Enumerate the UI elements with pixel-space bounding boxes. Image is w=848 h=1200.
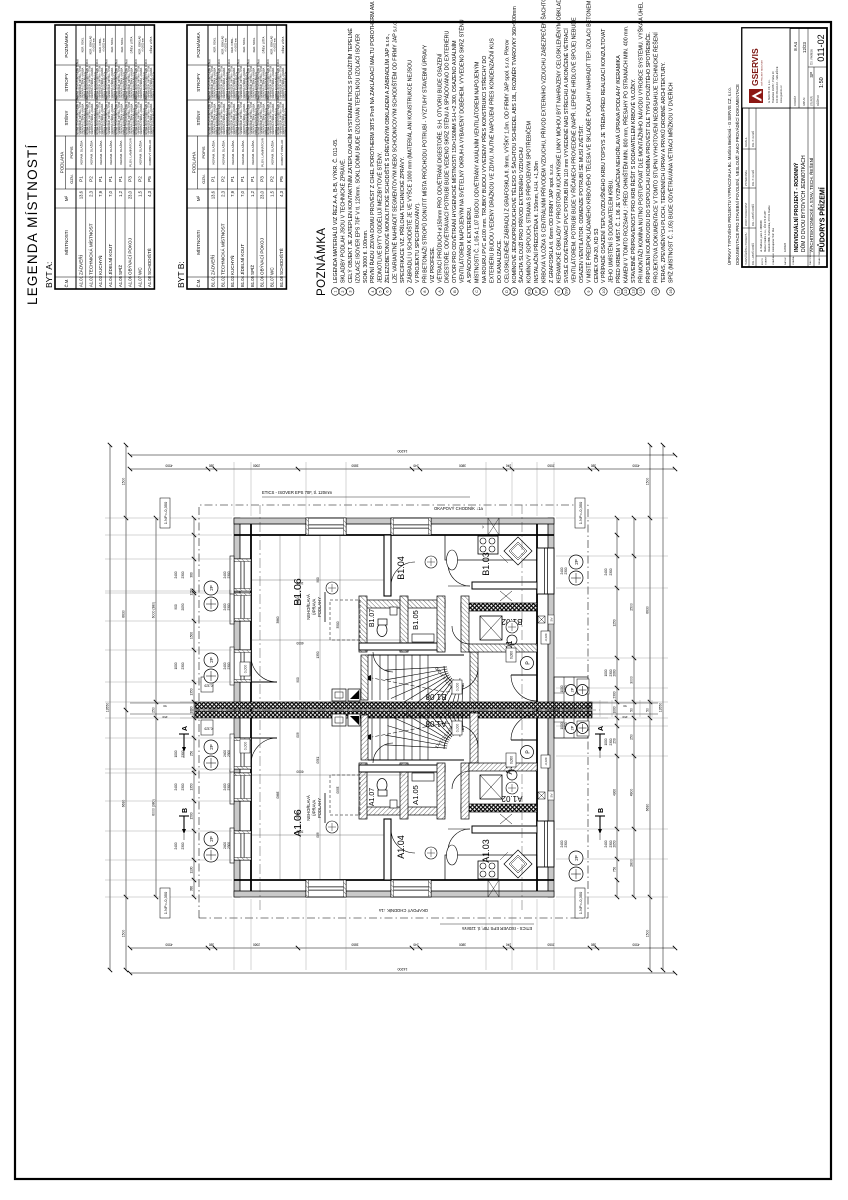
svg-text:SPÍŽ (MÍSTNOST Č. 1.05) BUDE O: SPÍŽ (MÍSTNOST Č. 1.05) BUDE ODVĚTRÁVÁNA…: [666, 82, 674, 283]
svg-text:P2: P2: [137, 176, 142, 182]
svg-text:NEHOŘLAVÁ: NEHOŘLAVÁ: [306, 594, 311, 620]
svg-text:2300: 2300: [227, 603, 231, 610]
svg-text:1350: 1350: [190, 783, 194, 790]
svg-text:KERAM. DLAŽBA: KERAM. DLAŽBA: [137, 140, 142, 164]
svg-text:2060: 2060: [547, 464, 554, 468]
svg-text:ÚPRAVA: ÚPRAVA: [312, 799, 317, 816]
svg-text:2P: 2P: [574, 559, 579, 565]
svg-text:zastoupena: Tom Rus: zastoupena: Tom Rus: [772, 227, 775, 252]
svg-text:A1.05: A1.05: [118, 275, 123, 287]
svg-text:1,2: 1,2: [118, 190, 123, 196]
svg-text:1,5: 1,5: [269, 190, 274, 196]
svg-text:1500: 1500: [646, 930, 650, 938]
svg-text:PLOV. LAMINÁTOVÁ: PLOV. LAMINÁTOVÁ: [261, 138, 265, 167]
svg-text:3860: 3860: [351, 943, 358, 947]
svg-text:2060: 2060: [253, 464, 260, 468]
svg-text:50: 50: [163, 704, 167, 708]
svg-text:380: 380: [190, 572, 194, 578]
svg-text:ZÁBRADLÍ U SCHODIŠTĚ JE VE VÝŠ: ZÁBRADLÍ U SCHODIŠTĚ JE VE VÝŠCE 1000 mm…: [406, 60, 414, 283]
svg-text:VÁPENOCEM. OMÍTKA + ŠTUK: VÁPENOCEM. OMÍTKA + ŠTUK: [108, 65, 111, 98]
svg-text:SÁDROVÁ STĚRKA + MALBA: SÁDROVÁ STĚRKA + MALBA: [282, 67, 285, 98]
svg-text:PODLAHY: PODLAHY: [317, 597, 322, 617]
svg-text:P2: P2: [220, 176, 225, 182]
svg-text:Dneboh 868b, Bučkovinka, 272 0: Dneboh 868b, Bučkovinka, 272 01 Kladno: [768, 205, 771, 252]
svg-text:-0,329: -0,329: [204, 684, 213, 688]
svg-text:MÍSTNOSTI Č. 1.05 A 1.07 BUDOU: MÍSTNOSTI Č. 1.05 A 1.07 BUDOU ODVĚTRÁNY…: [473, 62, 481, 283]
svg-text:JÍDELNÍ KOUT: JÍDELNÍ KOUT: [239, 244, 245, 275]
svg-text:PODLAHA: PODLAHA: [60, 152, 65, 174]
svg-text:STĚNY: STĚNY: [62, 110, 69, 125]
svg-text:2300: 2300: [181, 662, 185, 669]
svg-text:HLAVNÍ ŘEŠITEL PROJEKTU: HLAVNÍ ŘEŠITEL PROJEKTU: [745, 232, 748, 265]
svg-text:P1: P1: [118, 176, 123, 182]
svg-text:2300: 2300: [564, 840, 568, 847]
svg-text:6630: 6630: [122, 800, 126, 808]
svg-text:2060: 2060: [547, 943, 554, 947]
svg-text:STUPEŇ: STUPEŇ: [811, 96, 814, 106]
svg-text:6630: 6630: [646, 606, 650, 614]
svg-text:50: 50: [623, 704, 627, 708]
svg-text:A1.02: A1.02: [501, 794, 522, 803]
svg-text:TERAS, ZPEVNĚNÝCH PLOCH, TERÉN: TERAS, ZPEVNĚNÝCH PLOCH, TERÉNNÍCH ÚPRAV…: [659, 62, 667, 283]
svg-text:380: 380: [209, 464, 215, 468]
svg-text:2300: 2300: [181, 783, 185, 790]
svg-text:C: C: [475, 290, 479, 293]
svg-text:380: 380: [209, 943, 215, 947]
svg-text:P1: P1: [108, 176, 113, 182]
svg-text:www.gservis.cz: www.gservis.cz: [779, 85, 783, 103]
svg-text:DIGESTOŘE. ODVĚTRÁVACÍ POTRUBÍ: DIGESTOŘE. ODVĚTRÁVACÍ POTRUBÍ BUDE VEDE…: [443, 30, 451, 283]
svg-text:SÁDROVÁ STĚRKA + MALBA: SÁDROVÁ STĚRKA + MALBA: [223, 67, 226, 98]
svg-text:P1: P1: [230, 176, 235, 182]
svg-text:PODLAHY: PODLAHY: [317, 798, 322, 818]
svg-text:NOSNÉ ZDIVO POROTHERM 30 Profi: NOSNÉ ZDIVO POROTHERM 30 Profi: [218, 59, 221, 99]
svg-text:KERAMICKÉ OBKLADY V PROSTORU K: KERAMICKÉ OBKLADY V PROSTORU KUCHYŇSKÉ L…: [555, 0, 563, 283]
svg-text:VÁŠ PROJEKT NA DOSAH: VÁŠ PROJEKT NA DOSAH: [761, 60, 764, 86]
svg-text:240: 240: [413, 464, 419, 468]
svg-text:NOSNÉ ZDIVO POROTHERM 30 Profi: NOSNÉ ZDIVO POROTHERM 30 Profi: [145, 59, 148, 99]
svg-text:G SERVIS CZ, s.r.o.: G SERVIS CZ, s.r.o.: [767, 79, 771, 103]
svg-text:2300: 2300: [613, 691, 617, 698]
svg-text:1:50: 1:50: [819, 77, 825, 88]
svg-text:VĚTRACÍ PRŮDUCH ø150mm PRO ODV: VĚTRACÍ PRŮDUCH ø150mm PRO ODVĚTRÁNÍ DIG…: [435, 53, 443, 283]
svg-text:GSERVIS: GSERVIS: [750, 48, 760, 86]
svg-text:1,5: 1,5: [137, 190, 142, 196]
svg-text:+0+2000 mm: +0+2000 mm: [94, 38, 96, 52]
svg-text:KERAM. DLAŽBA: KERAM. DLAŽBA: [98, 140, 103, 164]
svg-text:0,000: 0,000: [510, 756, 514, 764]
svg-text:DŮM O DVOU BYTOVÝCH JEDNOTKÁCH: DŮM O DVOU BYTOVÝCH JEDNOTKÁCH: [800, 155, 807, 252]
svg-text:2300: 2300: [227, 662, 231, 669]
svg-text:P3: P3: [260, 176, 265, 182]
svg-text:ZÁDVEŘÍ: ZÁDVEŘÍ: [209, 254, 216, 275]
svg-text:1.NP=-0,350: 1.NP=-0,350: [163, 501, 168, 524]
svg-text:KER. OBKLAD: KER. OBKLAD: [88, 36, 92, 55]
svg-text:V PŘÍPADĚ OSAZENÍ TEPLOVZDUŠNÉ: V PŘÍPADĚ OSAZENÍ TEPLOVZDUŠNÉHO KRBU TO…: [599, 28, 607, 283]
svg-text:POPIS: POPIS: [69, 146, 74, 159]
svg-text:KER. OBKLAD: KER. OBKLAD: [137, 36, 141, 55]
svg-text:1130: 1130: [190, 866, 194, 873]
svg-text:SÁDROVÁ STĚRKA + MALBA: SÁDROVÁ STĚRKA + MALBA: [150, 103, 153, 134]
svg-text:SV: SV: [565, 289, 569, 295]
svg-text:380: 380: [591, 943, 597, 947]
svg-text:B1.08: B1.08: [279, 275, 284, 287]
svg-text:INSTALAČNÍ PŘEDSTĚNA tl. 150mm: INSTALAČNÍ PŘEDSTĚNA tl. 150mm, H.H. +1,…: [532, 161, 540, 283]
svg-text:10: 10: [602, 289, 606, 293]
svg-text:+0+2000 mm: +0+2000 mm: [275, 38, 277, 52]
svg-text:KER. OBKLAD: KER. OBKLAD: [269, 36, 273, 55]
svg-text:B: B: [453, 290, 457, 293]
svg-text:KRBOVÁ VLOŽKA S CENTRÁLNÍM PŘÍ: KRBOVÁ VLOŽKA S CENTRÁLNÍM PŘÍVODEM VZDU…: [540, 0, 548, 283]
svg-text:13550: 13550: [659, 703, 663, 713]
svg-text:KER. SOKL: KER. SOKL: [252, 37, 256, 52]
svg-text:2300: 2300: [564, 567, 568, 574]
svg-text:4900: 4900: [630, 789, 634, 797]
svg-text:2300: 2300: [227, 842, 231, 849]
svg-text:ING. LUBOŠ KONÍŘ: ING. LUBOŠ KONÍŘ: [752, 243, 755, 265]
svg-text:SÁDROVÁ STĚRKA + MALBA: SÁDROVÁ STĚRKA + MALBA: [272, 67, 275, 98]
svg-text:2500: 2500: [630, 603, 634, 611]
svg-text:1000: 1000: [604, 669, 608, 676]
svg-text:PŘI MONTÁŽI KOMÍNA NUTNO POSTU: PŘI MONTÁŽI KOMÍNA NUTNO POSTUPOVAT DLE …: [637, 2, 645, 283]
svg-text:P: P: [535, 290, 539, 293]
svg-text:SCHODIŠTĚ: SCHODIŠTĚ: [277, 248, 284, 275]
svg-text:240: 240: [506, 464, 512, 468]
svg-text:OKAPOVÝ CHODNÍK ↓1a: OKAPOVÝ CHODNÍK ↓1a: [378, 908, 428, 913]
svg-text:PRVNÍ ŘADU ZDIVA DOMU PROVÉST: PRVNÍ ŘADU ZDIVA DOMU PROVÉST Z CIHEL PO…: [368, 1, 376, 283]
svg-text:DATUM: DATUM: [784, 257, 787, 265]
svg-text:OKAPOVÝ CHODNÍK ↓1a: OKAPOVÝ CHODNÍK ↓1a: [434, 506, 484, 511]
svg-text:P2: P2: [269, 176, 274, 182]
svg-text:ETICS - ISOVER EPS 70F, tl. 12: ETICS - ISOVER EPS 70F, tl. 120mm: [461, 926, 532, 931]
svg-text:PRIMALEX PLUS BÍLÁ 2×: PRIMALEX PLUS BÍLÁ 2×: [153, 107, 156, 134]
svg-text:P5: P5: [147, 176, 152, 182]
svg-text:NOSNÉ ZDIVO POROTHERM 30 Profi: NOSNÉ ZDIVO POROTHERM 30 Profi: [267, 59, 270, 99]
svg-text:1000: 1000: [613, 706, 617, 713]
svg-text:VÁPENOCEM. OMÍTKA + ŠTUK: VÁPENOCEM. OMÍTKA + ŠTUK: [128, 101, 131, 134]
svg-text:4500: 4500: [165, 943, 172, 947]
svg-text:2300: 2300: [227, 750, 231, 757]
svg-text:7,0: 7,0: [108, 190, 113, 196]
svg-text:2: 2: [341, 290, 345, 292]
svg-text:900: 900: [296, 732, 300, 738]
svg-text:A1.06: A1.06: [128, 275, 133, 287]
svg-text:KERAM. DLAŽBA: KERAM. DLAŽBA: [118, 140, 123, 164]
svg-text:SV: SV: [550, 793, 554, 797]
svg-text:VÁPENOCEM. OMÍTKA + ŠTUK: VÁPENOCEM. OMÍTKA + ŠTUK: [240, 101, 243, 134]
svg-text:Tiskařská 10/257, Praha 10: Tiskařská 10/257, Praha 10: [771, 71, 775, 103]
svg-text:JEHO UMÍSTĚNÍ S DODAVATELEM KR: JEHO UMÍSTĚNÍ S DODAVATELEM KRBU.: [607, 179, 615, 283]
svg-text:14: 14: [639, 289, 643, 293]
svg-text:B1.04: B1.04: [396, 556, 406, 580]
svg-text:+0+2000 mm: +0+2000 mm: [235, 38, 237, 52]
svg-text:KERAM. DLAŽBA: KERAM. DLAŽBA: [108, 140, 113, 164]
svg-text:+0+2000 mm: +0+2000 mm: [143, 38, 145, 52]
svg-text:1000: 1000: [190, 706, 194, 713]
svg-text:WC: WC: [137, 267, 142, 275]
svg-text:PŘI BETONÁŽI STROPŮ DONUTIT MÍ: PŘI BETONÁŽI STROPŮ DONUTIT MÍSTA PRŮCHO…: [420, 44, 428, 283]
svg-text:OZN.: OZN.: [69, 174, 74, 184]
svg-text:DO KANALIZACE.: DO KANALIZACE.: [497, 239, 503, 283]
svg-text:-0,329: -0,329: [204, 727, 213, 731]
svg-text:SÁDROVÁ STĚRKA + MALBA: SÁDROVÁ STĚRKA + MALBA: [91, 103, 94, 134]
svg-text:SCHODIŠTĚ: SCHODIŠTĚ: [145, 248, 152, 275]
svg-text:3000: 3000: [630, 676, 634, 684]
svg-text:VÁPENOCEM. OMÍTKA + ŠTUK: VÁPENOCEM. OMÍTKA + ŠTUK: [79, 101, 82, 134]
svg-text:ARCHITEKTONICKÉ A STAV. TECH.: ARCHITEKTONICKÉ A STAV. TECH. ŘEŠENÍ: [807, 157, 814, 252]
svg-text:KERAM. DLAŽBA: KERAM. DLAŽBA: [220, 140, 225, 164]
svg-text:900: 900: [174, 604, 178, 610]
svg-text:14200: 14200: [398, 449, 408, 453]
svg-text:VÁPENOCEM. OMÍTKA + ŠTUK: VÁPENOCEM. OMÍTKA + ŠTUK: [211, 65, 214, 98]
svg-text:POPIS: POPIS: [201, 146, 206, 159]
svg-text:DUBOVÝ OBKLAD: DUBOVÝ OBKLAD: [280, 139, 284, 166]
svg-text:Č.M.: Č.M.: [64, 279, 69, 288]
svg-text:OZN.: OZN.: [201, 174, 206, 184]
svg-text:VÁPENOCEM. OMÍTKA + ŠTUK: VÁPENOCEM. OMÍTKA + ŠTUK: [230, 65, 233, 98]
svg-text:2300: 2300: [181, 571, 185, 578]
svg-text:OTVOR PRO ODVĚTRÁNÍ HYGIENICKÉ: OTVOR PRO ODVĚTRÁNÍ HYGIENICKÉ MÍSTNOSTI…: [450, 40, 458, 283]
svg-text:A1.05: A1.05: [411, 785, 420, 805]
svg-text:P: P: [526, 661, 532, 665]
svg-text:SOKL 3000 tl. 100mm.: SOKL 3000 tl. 100mm.: [363, 230, 369, 283]
svg-text:KER. SOKL: KER. SOKL: [120, 37, 124, 52]
svg-text:2P: 2P: [209, 744, 214, 750]
svg-text:250: 250: [152, 707, 156, 713]
svg-text:380: 380: [190, 886, 194, 892]
svg-text:2P: 2P: [571, 687, 575, 692]
svg-text:NOSNÉ ZDIVO POROTHERM 30 Profi: NOSNÉ ZDIVO POROTHERM 30 Profi: [135, 95, 138, 135]
svg-text:KERAM. DLAŽBA: KERAM. DLAŽBA: [269, 140, 274, 164]
svg-text:6000 (380): 6000 (380): [152, 602, 156, 618]
svg-text:B1.03: B1.03: [481, 552, 491, 576]
svg-text:DATUM: DATUM: [803, 98, 806, 106]
svg-text:SÁDROVÁ STĚRKA + MALBA: SÁDROVÁ STĚRKA + MALBA: [140, 67, 143, 98]
svg-text:1350: 1350: [316, 651, 320, 658]
svg-text:0,000: 0,000: [456, 683, 460, 692]
svg-text:SÁDROVÁ STĚRKA + MALBA: SÁDROVÁ STĚRKA + MALBA: [111, 67, 114, 98]
svg-text:SKLADBY PODLAH JSOU V TECHNICK: SKLADBY PODLAH JSOU V TECHNICKÉ ZPRÁVĚ.: [338, 159, 346, 283]
svg-text:POZNÁMKA: POZNÁMKA: [63, 32, 69, 57]
svg-text:A1.07: A1.07: [369, 788, 376, 806]
svg-text:2400: 2400: [604, 840, 608, 847]
svg-text:KERAM. DLAŽBA: KERAM. DLAŽBA: [79, 140, 84, 164]
svg-text:2P: 2P: [209, 657, 214, 663]
svg-text:'A': 'A': [481, 525, 485, 529]
svg-text:1250: 1250: [613, 619, 617, 626]
svg-text:SPECIFIKACE VIZ. PŘÍLOHA TECHN: SPECIFIKACE VIZ. PŘÍLOHA TECHNICKÉ ZPRÁV…: [398, 157, 406, 283]
svg-text:PODLAHA: PODLAHA: [192, 152, 197, 174]
svg-text:+0+2000 mm: +0+2000 mm: [103, 38, 105, 52]
svg-text:VÁPENOCEM. OMÍTKA + ŠTUK: VÁPENOCEM. OMÍTKA + ŠTUK: [128, 65, 131, 98]
svg-text:B1.06: B1.06: [292, 578, 304, 606]
svg-text:2P: 2P: [574, 855, 579, 861]
svg-text:FORMÁT: FORMÁT: [794, 95, 797, 106]
svg-text:NOSNÉ ZDIVO POROTHERM 30 Profi: NOSNÉ ZDIVO POROTHERM 30 Profi: [257, 59, 260, 99]
svg-text:VÁPENOCEM. OMÍTKA + ŠTUK: VÁPENOCEM. OMÍTKA + ŠTUK: [79, 65, 82, 98]
svg-text:Č.M.: Č.M.: [196, 279, 201, 288]
svg-text:23,0: 23,0: [260, 190, 265, 199]
svg-text:VÁPENOCEM. OMÍTKA + ŠTUK: VÁPENOCEM. OMÍTKA + ŠTUK: [230, 101, 233, 134]
svg-text:KRESLIL: KRESLIL: [745, 136, 748, 147]
svg-text:A: A: [438, 290, 442, 293]
svg-text:SÁDROVÁ STĚRKA + MALBA: SÁDROVÁ STĚRKA + MALBA: [140, 103, 143, 134]
svg-text:A1.04: A1.04: [108, 275, 113, 287]
svg-text:NOSNÉ ZDIVO POROTHERM 30 Profi: NOSNÉ ZDIVO POROTHERM 30 Profi: [267, 95, 270, 135]
svg-text:CEMEX CM-20, KD S3: CEMEX CM-20, KD S3: [594, 228, 600, 283]
svg-text:P2: P2: [88, 176, 93, 182]
svg-text:3800: 3800: [459, 464, 466, 468]
svg-text:KER. SOKL: KER. SOKL: [213, 37, 217, 52]
svg-text:1.NP=-0,350: 1.NP=-0,350: [163, 891, 168, 914]
svg-text:0,000: 0,000: [244, 742, 248, 751]
svg-text:12: 12: [624, 289, 628, 293]
svg-text:MÍSTNOSTI: MÍSTNOSTI: [195, 230, 201, 255]
svg-text:ING. P. LUKEŠ: ING. P. LUKEŠ: [752, 170, 755, 186]
svg-text:3: 3: [349, 290, 353, 292]
svg-text:KS: KS: [527, 289, 531, 295]
svg-text:13: 13: [632, 289, 636, 293]
svg-text:DUBOVÝ OBKLAD: DUBOVÝ OBKLAD: [148, 139, 152, 166]
svg-text:PROJEKTOVÁ DOKUMENTACE V TOMTO: PROJEKTOVÁ DOKUMENTACE V TOMTO STUPNI VY…: [651, 32, 659, 283]
svg-text:PRIMALEX PLUS BÍLÁ 2×: PRIMALEX PLUS BÍLÁ 2×: [285, 71, 288, 98]
svg-text:PRIMALEX PLUS BÍLÁ 2×: PRIMALEX PLUS BÍLÁ 2×: [285, 107, 288, 134]
svg-text:SÁDROVÁ STĚRKA + MALBA: SÁDROVÁ STĚRKA + MALBA: [223, 103, 226, 134]
svg-text:13550: 13550: [106, 703, 110, 713]
svg-text:2400: 2400: [174, 571, 178, 578]
svg-text:IZOLACE ISOVER EPS 70F V tl. 1: IZOLACE ISOVER EPS 70F V tl. 120mm. SOKL…: [354, 34, 361, 283]
svg-text:B1.03: B1.03: [230, 275, 235, 287]
svg-text:250: 250: [162, 715, 167, 719]
svg-text:POZNÁMKA: POZNÁMKA: [315, 227, 328, 296]
svg-text:B1.07: B1.07: [269, 275, 274, 287]
svg-text:SPÍŽ: SPÍŽ: [248, 265, 255, 275]
svg-text:ETICS - ISOVER EPS 70F, tl. 12: ETICS - ISOVER EPS 70F, tl. 120mm: [262, 490, 333, 495]
svg-text:SÁDROVÁ STĚRKA + MALBA: SÁDROVÁ STĚRKA + MALBA: [121, 103, 124, 134]
svg-text:DOKUMENTACE PRO STAVEBNÍ POVOL: DOKUMENTACE PRO STAVEBNÍ POVOLENÍ, NESLO…: [735, 84, 740, 265]
svg-text:0,000: 0,000: [244, 665, 248, 674]
svg-text:2060: 2060: [613, 669, 617, 676]
svg-text:1000: 1000: [604, 738, 608, 745]
svg-text:VÁPENOCEM. OMÍTKA + ŠTUK: VÁPENOCEM. OMÍTKA + ŠTUK: [108, 101, 111, 134]
svg-text:1.NP=-0,350: 1.NP=-0,350: [578, 891, 583, 914]
svg-text:2300: 2300: [227, 783, 231, 790]
svg-text:SÁDROVÁ STĚRKA + MALBA: SÁDROVÁ STĚRKA + MALBA: [282, 103, 285, 134]
svg-text:NA ROURU PVC ø100 mm. TRUBKY B: NA ROURU PVC ø100 mm. TRUBKY BUDOU VYVED…: [480, 56, 488, 283]
svg-text:P5: P5: [279, 176, 284, 182]
svg-text:240: 240: [506, 943, 512, 947]
svg-text:KERAM. DLAŽBA: KERAM. DLAŽBA: [250, 140, 255, 164]
svg-text:SVISLÉ ODVĚTRÁVACÍ PVC POTRUBÍ: SVISLÉ ODVĚTRÁVACÍ PVC POTRUBÍ DN 110 mm…: [562, 28, 570, 283]
svg-text:4,3: 4,3: [147, 190, 152, 196]
svg-text:B1.02: B1.02: [220, 275, 225, 287]
svg-text:V MÍSTĚ PŘEDPOKLÁDANÉHO KRBOVÉ: V MÍSTĚ PŘEDPOKLÁDANÉHO KRBOVÉHO TĚLESA …: [584, 1, 592, 283]
svg-text:VÁPENOCEM. OMÍTKA + ŠTUK: VÁPENOCEM. OMÍTKA + ŠTUK: [98, 101, 101, 134]
svg-text:SP: SP: [809, 72, 814, 78]
svg-text:3800: 3800: [459, 943, 466, 947]
svg-text:VÁPENOCEM. OMÍTKA + ŠTUK: VÁPENOCEM. OMÍTKA + ŠTUK: [89, 101, 92, 134]
svg-text:TECHNICKÁ MÍSTNOST: TECHNICKÁ MÍSTNOST: [87, 223, 93, 275]
svg-text:VENTILÁTOREM. POTRUBÍ BUDE V Ř: VENTILÁTOREM. POTRUBÍ BUDE V ŘÍČANECH PR…: [569, 17, 577, 283]
svg-text:2300: 2300: [609, 840, 613, 847]
svg-text:NOSNÉ ZDIVO POROTHERM 30 Profi: NOSNÉ ZDIVO POROTHERM 30 Profi: [135, 59, 138, 99]
svg-text:12/23: 12/23: [802, 41, 807, 53]
svg-text:NOSNÉ ZDIVO POROTHERM 30 Profi: NOSNÉ ZDIVO POROTHERM 30 Profi: [218, 95, 221, 135]
svg-text:KER. SOKL: KER. SOKL: [110, 37, 114, 52]
svg-text:A SPÁDOVÁNO K EXTERIÉRU.: A SPÁDOVÁNO K EXTERIÉRU.: [466, 206, 473, 283]
svg-text:NOSNÉ ZDIVO POROTHERM 30 Profi: NOSNÉ ZDIVO POROTHERM 30 Profi: [277, 59, 280, 99]
svg-text:B1.05: B1.05: [411, 610, 420, 630]
svg-text:DŘEV. LIŠTA: DŘEV. LIŠTA: [261, 37, 266, 54]
svg-text:D: D: [505, 290, 509, 293]
svg-text:15: 15: [654, 289, 658, 293]
svg-text:2,3: 2,3: [220, 190, 225, 196]
svg-text:11: 11: [617, 290, 621, 294]
svg-text:3860: 3860: [276, 616, 280, 623]
svg-text:3860: 3860: [276, 791, 280, 798]
svg-text:1500: 1500: [122, 930, 126, 938]
svg-text:INDIVIDUÁLNÍ PROJEKT - RODINNÝ: INDIVIDUÁLNÍ PROJEKT - RODINNÝ: [792, 162, 800, 252]
svg-text:7,9: 7,9: [230, 190, 235, 196]
svg-text:SV: SV: [550, 617, 554, 621]
svg-text:NOSNÉ ZDIVO POROTHERM 30 Profi: NOSNÉ ZDIVO POROTHERM 30 Profi: [257, 95, 260, 135]
svg-text:50: 50: [630, 708, 634, 712]
svg-text:PŘIPOJENÍ KOUŘOVODU DO SOPOUCH: PŘIPOJENÍ KOUŘOVODU DO SOPOUCHU KOMÍNA P…: [644, 32, 652, 283]
svg-text:OBÝVACÍ POKOJ: OBÝVACÍ POKOJ: [259, 238, 265, 275]
svg-text:SÁDROVÁ STĚRKA + MALBA: SÁDROVÁ STĚRKA + MALBA: [121, 67, 124, 98]
svg-text:2P: 2P: [209, 836, 214, 842]
svg-text:MĚŘÍTKO: MĚŘÍTKO: [817, 95, 820, 106]
svg-text:14200: 14200: [398, 967, 408, 971]
svg-text:KERAM. DLAŽBA: KERAM. DLAŽBA: [88, 140, 93, 164]
svg-text:PŘED KRBEM V MÍST. Č. 1.06 JE: PŘED KRBEM V MÍST. Č. 1.06 JE VYZNAČENA …: [614, 55, 622, 283]
svg-text:ÚPRAVA: ÚPRAVA: [312, 598, 317, 615]
svg-text:8 A4: 8 A4: [793, 41, 798, 50]
svg-text:PLOV. LAMINÁTOVÁ: PLOV. LAMINÁTOVÁ: [129, 138, 133, 167]
svg-text:7,9: 7,9: [98, 190, 103, 196]
svg-text:KOMÍNOVÝ SOPOUCH, STRANA S PŘI: KOMÍNOVÝ SOPOUCH, STRANA S PŘIPOJENÝM SP…: [525, 121, 533, 283]
svg-text:JÍDELNÍ KOUT: JÍDELNÍ KOUT: [107, 244, 113, 275]
svg-text:2060: 2060: [253, 943, 260, 947]
svg-text:A: A: [598, 726, 605, 731]
svg-text:011-02: 011-02: [816, 34, 826, 61]
svg-text:-0,020: -0,020: [544, 757, 548, 765]
svg-text:BYT A:: BYT A:: [44, 262, 54, 288]
svg-text:5: 5: [378, 290, 382, 292]
svg-text:3500: 3500: [336, 621, 340, 628]
svg-text:LZE VARIANTNĚ NAHRADIT SEGMENT: LZE VARIANTNĚ NAHRADIT SEGMENTOVÝM NEBO …: [391, 20, 399, 283]
svg-text:B1.01: B1.01: [211, 275, 216, 287]
svg-text:1250: 1250: [190, 588, 194, 595]
svg-text:240: 240: [413, 943, 419, 947]
svg-text:VÁPENOCEM. OMÍTKA + ŠTUK: VÁPENOCEM. OMÍTKA + ŠTUK: [250, 65, 253, 98]
svg-text:TECHNICKÁ MÍSTNOST: TECHNICKÁ MÍSTNOST: [219, 223, 225, 275]
svg-text:ČÍS. VÝKRESU: ČÍS. VÝKRESU: [811, 49, 814, 65]
svg-text:1350: 1350: [316, 756, 320, 763]
svg-text:V PROJEKTU SPECIFIKOVÁNY).: V PROJEKTU SPECIFIKOVÁNY).: [414, 202, 421, 283]
svg-text:2300: 2300: [181, 750, 185, 757]
svg-text:A1.02: A1.02: [88, 275, 93, 287]
svg-text:P3: P3: [128, 176, 133, 182]
svg-text:PRIMALEX PLUS BÍLÁ 2×: PRIMALEX PLUS BÍLÁ 2×: [153, 71, 156, 98]
svg-text:A1.01: A1.01: [79, 275, 84, 287]
svg-text:VÁPENOCEM. OMÍTKA + ŠTUK: VÁPENOCEM. OMÍTKA + ŠTUK: [240, 65, 243, 98]
svg-text:1500: 1500: [190, 632, 194, 639]
svg-text:1500: 1500: [190, 812, 194, 819]
svg-text:NOSNÉ ZDIVO POROTHERM 30 Profi: NOSNÉ ZDIVO POROTHERM 30 Profi: [277, 95, 280, 135]
svg-text:ZODP. PROJEKTANT: ZODP. PROJEKTANT: [745, 202, 748, 226]
svg-text:ŽELEZOBETONOVÉ MONOLITICKÉ SCH: ŽELEZOBETONOVÉ MONOLITICKÉ SCHODIŠTĚ S D…: [383, 34, 391, 283]
